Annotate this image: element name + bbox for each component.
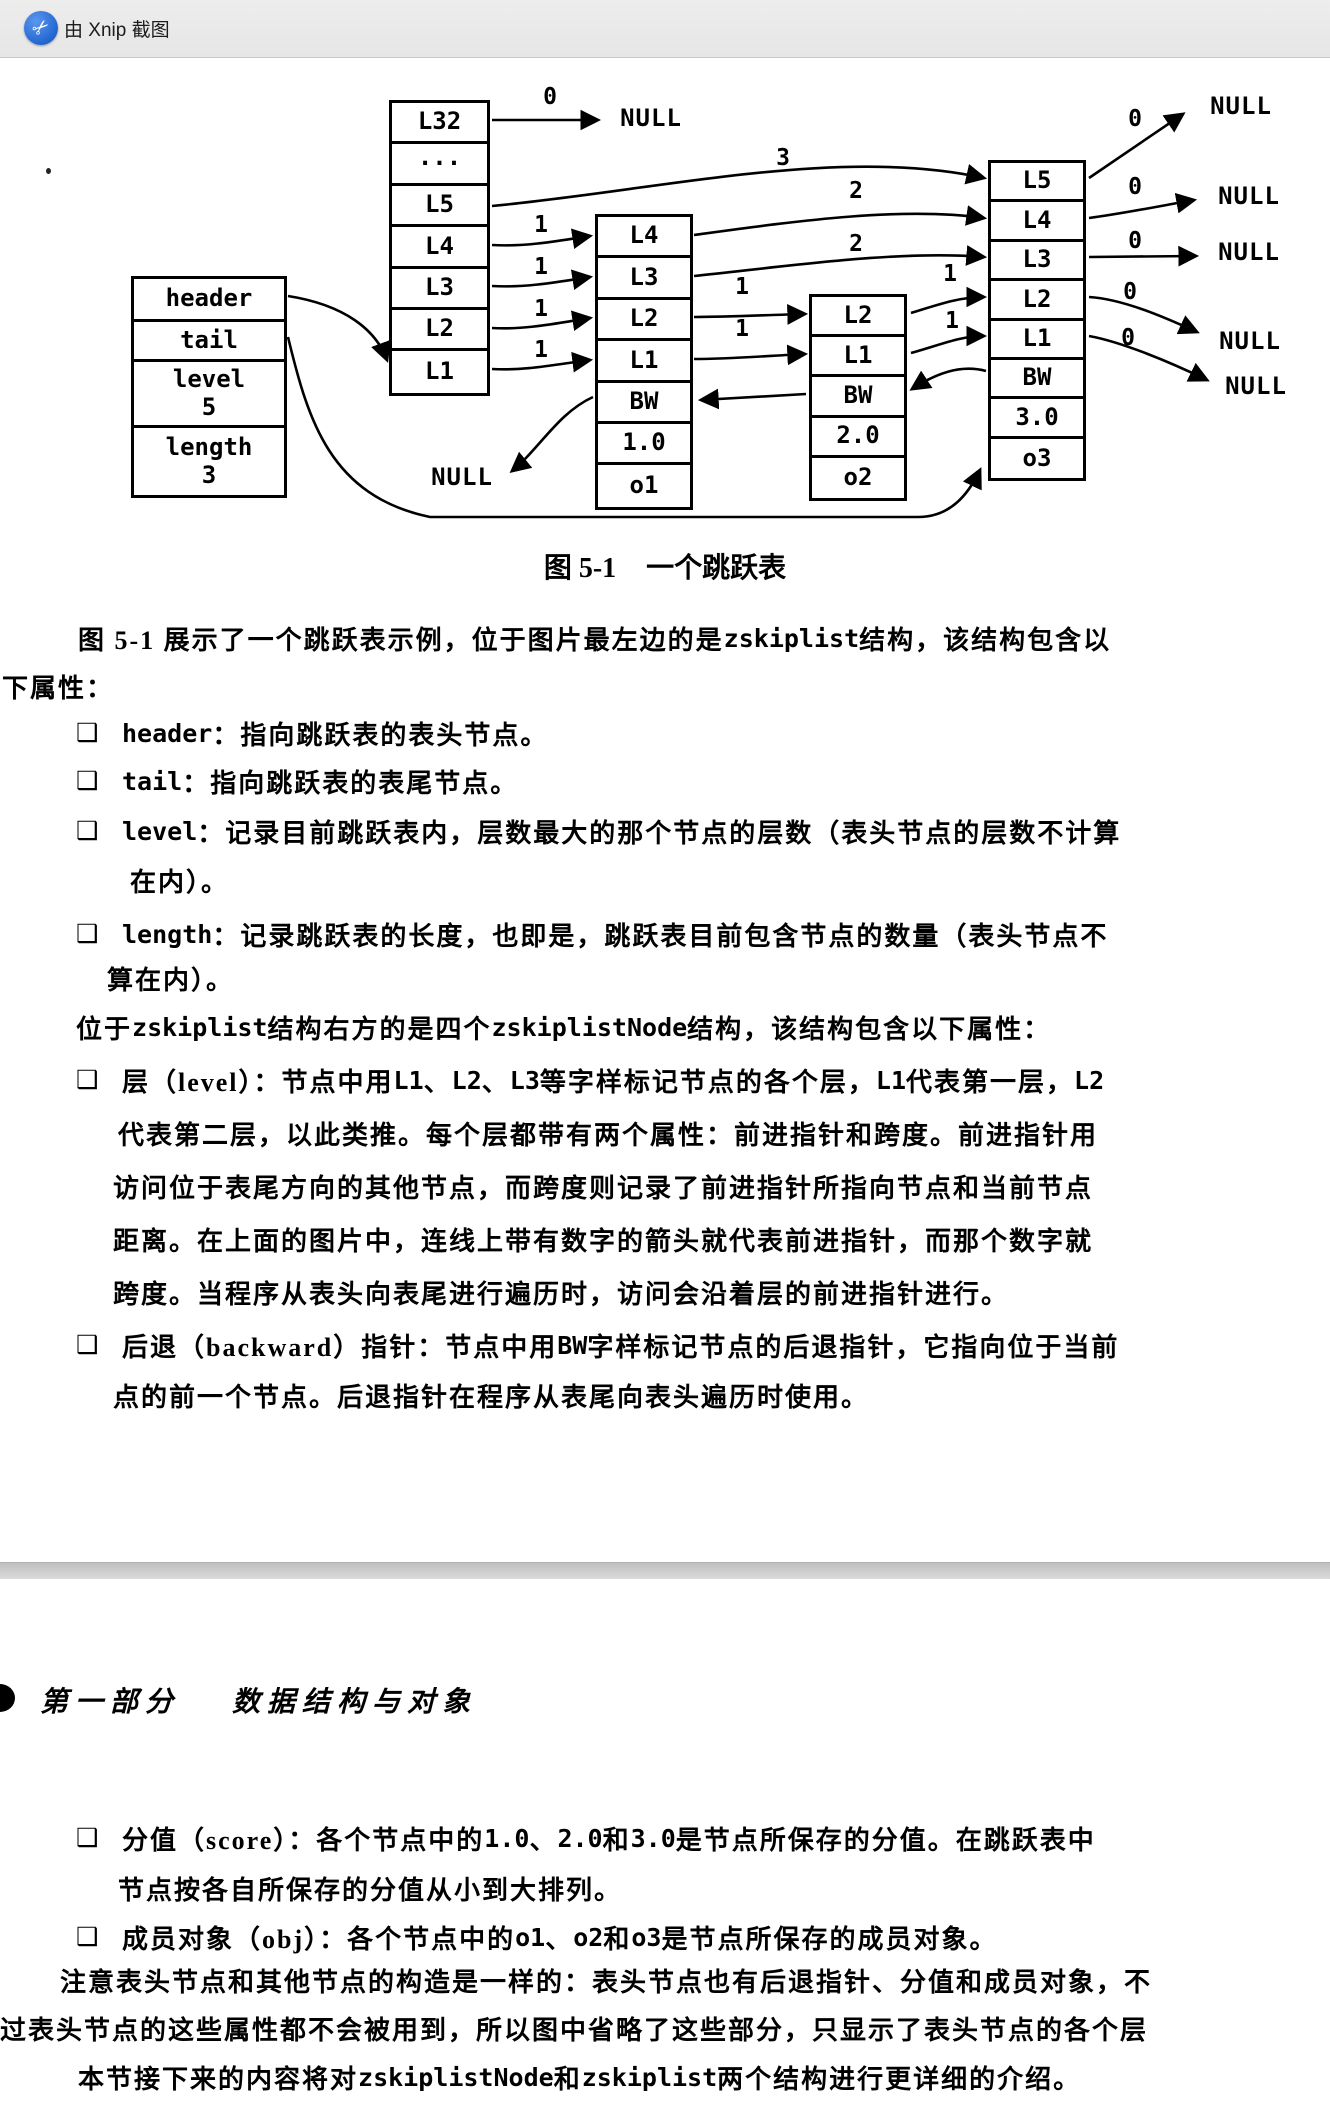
text-line: 注意表头节点和其他节点的构造是一样的：表头节点也有后退指针、分值和成员对象，不 bbox=[60, 1954, 1152, 2006]
text-segment: ：记录目前跳跃表内，层数最大的那个节点的层数（表头节点的层数不计算 bbox=[197, 813, 1121, 850]
struct-row: L5 bbox=[991, 163, 1083, 202]
struct-row: L4 bbox=[392, 227, 487, 268]
struct-row: L2 bbox=[991, 281, 1083, 320]
text-segment: 下属性： bbox=[2, 668, 114, 705]
bullet-square-icon: ❑ bbox=[76, 816, 122, 846]
text-segment: 和 bbox=[603, 1820, 631, 1857]
scan-dot-artifact bbox=[46, 168, 51, 174]
arrow-node3-L4-null bbox=[1089, 200, 1194, 218]
struct-row: header bbox=[134, 279, 284, 322]
code-term: 1.0 bbox=[484, 1824, 529, 1853]
text-line: 距离。在上面的图片中，连线上带有数字的箭头就代表前进指针，而那个数字就 bbox=[113, 1213, 1093, 1265]
struct-node-2: L2L1BW2.0o2 bbox=[809, 294, 907, 501]
span-count-label: 2 bbox=[849, 178, 863, 204]
struct-row: tail bbox=[134, 322, 284, 362]
text-segment: 是节点所保存的分值。在跳跃表中 bbox=[676, 1820, 1096, 1857]
code-term: length bbox=[122, 920, 212, 949]
text-line: ❑层（level）：节点中用 L1、L2、L3 等字样标记节点的各个层，L1 代… bbox=[76, 1054, 1104, 1106]
bullet-square-icon: ❑ bbox=[76, 1922, 122, 1952]
code-term: zskiplistNode bbox=[492, 1013, 688, 1042]
struct-row: length 3 bbox=[134, 428, 284, 495]
text-segment: 和 bbox=[554, 2059, 582, 2096]
text-segment: 结构右方的是四个 bbox=[267, 1009, 491, 1046]
text-line: 位于 zskiplist 结构右方的是四个 zskiplistNode 结构，该… bbox=[76, 1001, 1051, 1053]
struct-row: ··· bbox=[392, 144, 487, 185]
text-segment: 距离。在上面的图片中，连线上带有数字的箭头就代表前进指针，而那个数字就 bbox=[113, 1221, 1093, 1258]
struct-row: L4 bbox=[598, 217, 690, 258]
code-term: L1 bbox=[876, 1066, 906, 1095]
text-line: 跨度。当程序从表头向表尾进行遍历时，访问会沿着层的前进指针进行。 bbox=[113, 1266, 1009, 1318]
code-term: L2 bbox=[452, 1066, 482, 1095]
part-title: 数据结构与对象 bbox=[232, 1680, 477, 1720]
arrow-node1-L1-node2 bbox=[694, 354, 805, 359]
text-segment: 过表头节点的这些属性都不会被用到，所以图中省略了这些部分，只显示了表头节点的各个… bbox=[0, 2010, 1148, 2047]
code-term: 3.0 bbox=[631, 1824, 676, 1853]
figure-caption: 图 5-1 一个跳跃表 bbox=[0, 546, 1330, 586]
arrow-node2-BW-node1 bbox=[701, 394, 806, 400]
code-term: o2 bbox=[573, 1923, 603, 1952]
null-label: NULL bbox=[620, 104, 682, 132]
struct-row: 3.0 bbox=[991, 399, 1083, 438]
arrow-node1-L2-node2 bbox=[694, 314, 805, 317]
text-line: 节点按各自所保存的分值从小到大排列。 bbox=[118, 1862, 622, 1914]
struct-row: o1 bbox=[598, 465, 690, 506]
text-segment: 和 bbox=[603, 1919, 631, 1956]
scissors-icon: ✂ bbox=[28, 15, 54, 41]
struct-row: L4 bbox=[991, 202, 1083, 241]
struct-row: BW bbox=[598, 383, 690, 424]
figure-caption-number: 图 5-1 bbox=[544, 546, 616, 586]
arrow-node3-L1-null bbox=[1089, 336, 1207, 380]
span-count-label: 1 bbox=[534, 254, 548, 280]
arrow-headerfield-node bbox=[288, 296, 387, 360]
code-term: 2.0 bbox=[557, 1824, 602, 1853]
struct-row: L3 bbox=[598, 258, 690, 299]
text-segment: 代表第一层， bbox=[906, 1062, 1074, 1099]
struct-row: o3 bbox=[991, 439, 1083, 478]
code-term: zskiplist bbox=[132, 1013, 267, 1042]
text-line: 算在内）。 bbox=[107, 952, 234, 1004]
text-segment: 分值（score）：各个节点中的 bbox=[122, 1820, 484, 1857]
span-count-label: 1 bbox=[534, 212, 548, 238]
arrow-header-L5-node3 bbox=[492, 167, 984, 206]
text-segment: ：记录跳跃表的长度，也即是，跳跃表目前包含节点的数量（表头节点不 bbox=[212, 916, 1108, 953]
arrow-node1-L3-node3 bbox=[694, 255, 984, 276]
arrow-node1-BW-null bbox=[512, 397, 593, 471]
text-line: 过表头节点的这些属性都不会被用到，所以图中省略了这些部分，只显示了表头节点的各个… bbox=[0, 2002, 1148, 2054]
text-segment: 结构，该结构包含以下属性： bbox=[687, 1009, 1051, 1046]
struct-row: L5 bbox=[392, 186, 487, 227]
struct-row: BW bbox=[991, 360, 1083, 399]
text-segment: 位于 bbox=[76, 1009, 132, 1046]
text-segment: 等字样标记节点的各个层， bbox=[540, 1062, 876, 1099]
struct-node-3: L5L4L3L2L1BW3.0o3 bbox=[988, 160, 1086, 481]
text-line: 本节接下来的内容将对 zskiplistNode 和 zskiplist 两个结… bbox=[78, 2051, 1081, 2103]
span-count-label: 1 bbox=[945, 308, 959, 334]
bullet-square-icon: ❑ bbox=[76, 766, 122, 796]
section-divider bbox=[0, 1562, 1330, 1579]
part-header: 第一部分 数据结构与对象 bbox=[0, 1680, 1330, 1720]
text-segment: 访问位于表尾方向的其他节点，而跨度则记录了前进指针所指向节点和当前节点 bbox=[113, 1168, 1093, 1205]
text-segment: 结构，该结构包含以 bbox=[859, 620, 1111, 657]
text-segment: ：指向跳跃表的表尾节点。 bbox=[182, 763, 518, 800]
struct-row: L2 bbox=[392, 310, 487, 351]
code-term: o1 bbox=[515, 1923, 545, 1952]
text-segment: 在内）。 bbox=[130, 862, 229, 899]
span-count-label: 1 bbox=[943, 261, 957, 287]
titlebar-label: 由 Xnip 截图 bbox=[64, 0, 170, 57]
null-label: NULL bbox=[1210, 92, 1272, 120]
text-segment: ：指向跳跃表的表头节点。 bbox=[212, 715, 548, 752]
span-count-label: 0 bbox=[1128, 228, 1142, 254]
text-segment: 成员对象（obj）：各个节点中的 bbox=[122, 1919, 515, 1956]
span-count-label: 0 bbox=[543, 84, 557, 110]
text-segment: 图 5-1 展示了一个跳跃表示例，位于图片最左边的是 bbox=[78, 620, 724, 657]
part-arrow-icon bbox=[0, 1684, 15, 1712]
text-segment: 是节点所保存的成员对象。 bbox=[661, 1919, 997, 1956]
text-segment: 后退（backward）指针：节点中用 bbox=[122, 1327, 557, 1364]
struct-row: L3 bbox=[991, 242, 1083, 281]
text-segment: 两个结构进行更详细的介绍。 bbox=[717, 2059, 1081, 2096]
struct-row: 1.0 bbox=[598, 424, 690, 465]
code-term: L3 bbox=[510, 1066, 540, 1095]
span-count-label: 3 bbox=[776, 145, 790, 171]
struct-row: L1 bbox=[598, 341, 690, 382]
span-count-label: 1 bbox=[735, 274, 749, 300]
text-segment: 点的前一个节点。后退指针在程序从表尾向表头遍历时使用。 bbox=[113, 1377, 869, 1414]
text-segment: 节点按各自所保存的分值从小到大排列。 bbox=[118, 1870, 622, 1907]
text-line: 下属性： bbox=[2, 660, 114, 712]
span-count-label: 0 bbox=[1128, 174, 1142, 200]
text-segment: 跨度。当程序从表头向表尾进行遍历时，访问会沿着层的前进指针进行。 bbox=[113, 1274, 1009, 1311]
xnip-logo-icon: ✂ bbox=[24, 11, 58, 45]
struct-row: 2.0 bbox=[812, 418, 904, 458]
xnip-titlebar: ✂ 由 Xnip 截图 bbox=[0, 0, 1330, 58]
span-count-label: 1 bbox=[735, 316, 749, 342]
text-segment: 、 bbox=[424, 1062, 452, 1099]
code-term: BW bbox=[557, 1331, 587, 1360]
struct-row: L2 bbox=[812, 297, 904, 337]
span-count-label: 0 bbox=[1128, 106, 1142, 132]
figure-caption-title: 一个跳跃表 bbox=[646, 546, 786, 586]
code-term: tail bbox=[122, 767, 182, 796]
bullet-square-icon: ❑ bbox=[76, 718, 122, 748]
bullet-square-icon: ❑ bbox=[76, 1330, 122, 1360]
struct-header-node: L32···L5L4L3L2L1 bbox=[389, 100, 490, 396]
code-term: L1 bbox=[394, 1066, 424, 1095]
struct-row: L1 bbox=[812, 337, 904, 377]
struct-row: L3 bbox=[392, 269, 487, 310]
null-label: NULL bbox=[1225, 372, 1287, 400]
text-segment: 、 bbox=[545, 1919, 573, 1956]
text-segment: 、 bbox=[529, 1820, 557, 1857]
struct-row: L1 bbox=[392, 351, 487, 392]
screenshot-root: ✂ 由 Xnip 截图 bbox=[0, 0, 1330, 2122]
text-line: 在内）。 bbox=[130, 854, 229, 906]
text-line: 访问位于表尾方向的其他节点，而跨度则记录了前进指针所指向节点和当前节点 bbox=[113, 1160, 1093, 1212]
struct-node-1: L4L3L2L1BW1.0o1 bbox=[595, 214, 693, 510]
text-segment: 代表第二层，以此类推。每个层都带有两个属性：前进指针和跨度。前进指针用 bbox=[118, 1115, 1098, 1152]
bullet-square-icon: ❑ bbox=[76, 1823, 122, 1853]
text-line: ❑level：记录目前跳跃表内，层数最大的那个节点的层数（表头节点的层数不计算 bbox=[76, 805, 1121, 857]
text-segment: 本节接下来的内容将对 bbox=[78, 2059, 358, 2096]
text-segment: 算在内）。 bbox=[107, 960, 234, 997]
code-term: L2 bbox=[1074, 1066, 1104, 1095]
bullet-square-icon: ❑ bbox=[76, 1065, 122, 1095]
text-line: ❑分值（score）：各个节点中的 1.0、2.0 和 3.0 是节点所保存的分… bbox=[76, 1812, 1096, 1864]
text-segment: 、 bbox=[482, 1062, 510, 1099]
arrow-node3-BW-node2 bbox=[912, 369, 986, 389]
struct-row: L1 bbox=[991, 321, 1083, 360]
text-line: 代表第二层，以此类推。每个层都带有两个属性：前进指针和跨度。前进指针用 bbox=[118, 1107, 1098, 1159]
code-term: o3 bbox=[631, 1923, 661, 1952]
code-term: zskiplist bbox=[724, 624, 859, 653]
span-count-label: 0 bbox=[1121, 325, 1135, 351]
null-label: NULL bbox=[1219, 327, 1281, 355]
arrow-node3-L2-null bbox=[1089, 297, 1197, 332]
span-count-label: 1 bbox=[534, 296, 548, 322]
text-line: 点的前一个节点。后退指针在程序从表尾向表头遍历时使用。 bbox=[113, 1369, 869, 1421]
text-line: ❑header：指向跳跃表的表头节点。 bbox=[76, 707, 548, 759]
text-segment: 注意表头节点和其他节点的构造是一样的：表头节点也有后退指针、分值和成员对象，不 bbox=[60, 1962, 1152, 1999]
null-label: NULL bbox=[1218, 182, 1280, 210]
struct-row: o2 bbox=[812, 458, 904, 498]
arrow-node1-L4-node3 bbox=[694, 214, 984, 235]
code-term: level bbox=[122, 817, 197, 846]
text-line: 图 5-1 展示了一个跳跃表示例，位于图片最左边的是 zskiplist 结构，… bbox=[78, 612, 1111, 664]
span-count-label: 1 bbox=[534, 337, 548, 363]
code-term: zskiplistNode bbox=[358, 2063, 554, 2092]
struct-row: BW bbox=[812, 377, 904, 417]
bullet-square-icon: ❑ bbox=[76, 919, 122, 949]
struct-zskiplist: headertaillevel 5length 3 bbox=[131, 276, 287, 498]
span-count-label: 0 bbox=[1123, 279, 1137, 305]
text-segment: 字样标记节点的后退指针，它指向位于当前 bbox=[587, 1327, 1119, 1364]
arrow-node3-L3-null bbox=[1089, 256, 1196, 257]
span-count-label: 2 bbox=[849, 231, 863, 257]
code-term: zskiplist bbox=[582, 2063, 717, 2092]
part-number: 第一部分 bbox=[40, 1680, 180, 1720]
arrow-node2-L1-node3 bbox=[911, 336, 984, 353]
null-label: NULL bbox=[1218, 238, 1280, 266]
code-term: header bbox=[122, 719, 212, 748]
struct-row: level 5 bbox=[134, 362, 284, 428]
null-label: NULL bbox=[431, 463, 493, 491]
text-line: ❑tail：指向跳跃表的表尾节点。 bbox=[76, 755, 518, 807]
struct-row: L2 bbox=[598, 300, 690, 341]
text-line: ❑后退（backward）指针：节点中用 BW 字样标记节点的后退指针，它指向位… bbox=[76, 1319, 1119, 1371]
struct-row: L32 bbox=[392, 103, 487, 144]
text-segment: 层（level）：节点中用 bbox=[122, 1062, 394, 1099]
